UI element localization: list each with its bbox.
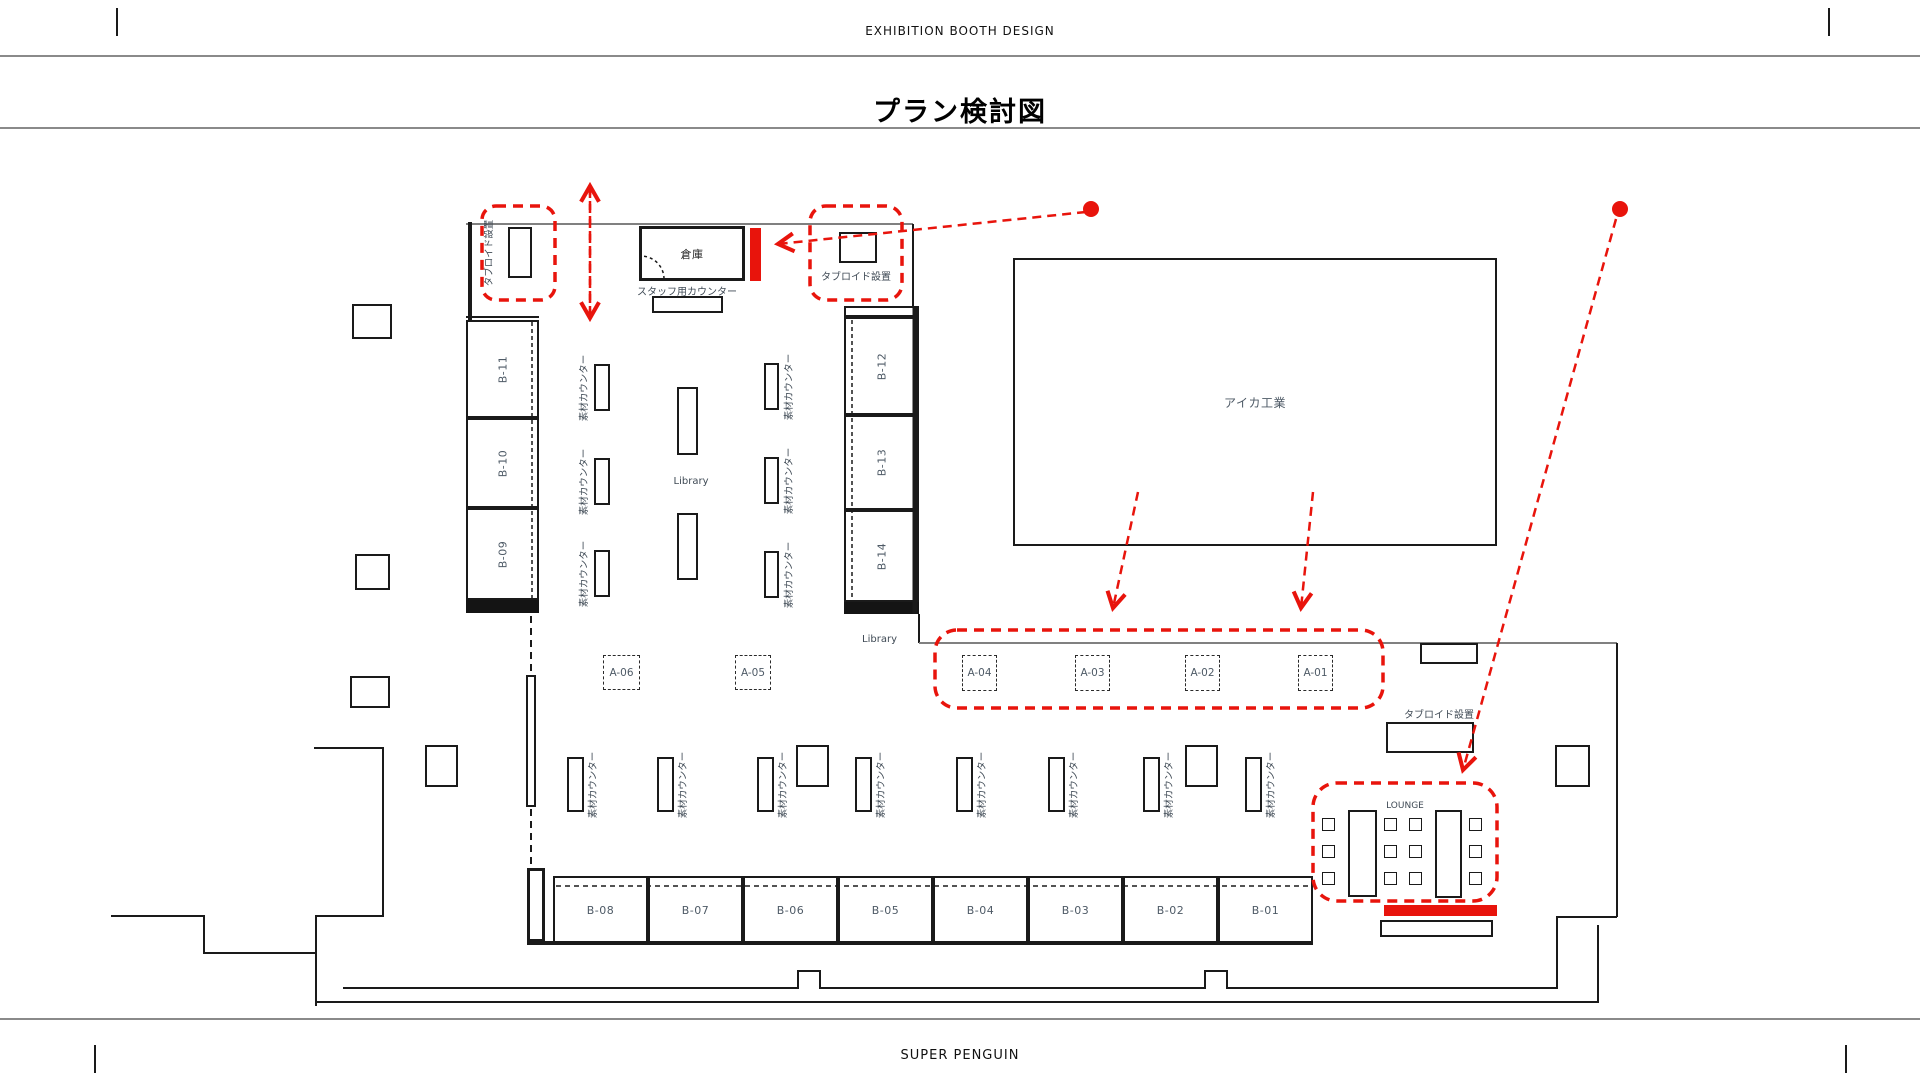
tabloid-top-highlight-zone: [810, 206, 902, 300]
callout-dot-left: [1083, 201, 1099, 217]
callout-dot-right: [1612, 201, 1628, 217]
annotation-overlay: [0, 0, 1920, 1080]
red-wall-marker-top: [750, 228, 761, 281]
a-row-highlight-zone: [935, 630, 1383, 708]
storage-door-arc: [641, 256, 664, 279]
callout-arrow-to-lounge: [1463, 219, 1616, 770]
floor-plan-page: EXHIBITION BOOTH DESIGN プラン検討図 SUPER PEN…: [0, 0, 1920, 1080]
red-wall-marker-lounge: [1384, 905, 1497, 916]
callout-arrow-to-red-marker: [778, 212, 1086, 244]
aica-arrow-left: [1113, 492, 1138, 608]
lounge-highlight-zone: [1313, 783, 1497, 901]
aica-arrow-right: [1301, 492, 1313, 608]
tabloid-left-highlight-zone: [482, 206, 555, 300]
